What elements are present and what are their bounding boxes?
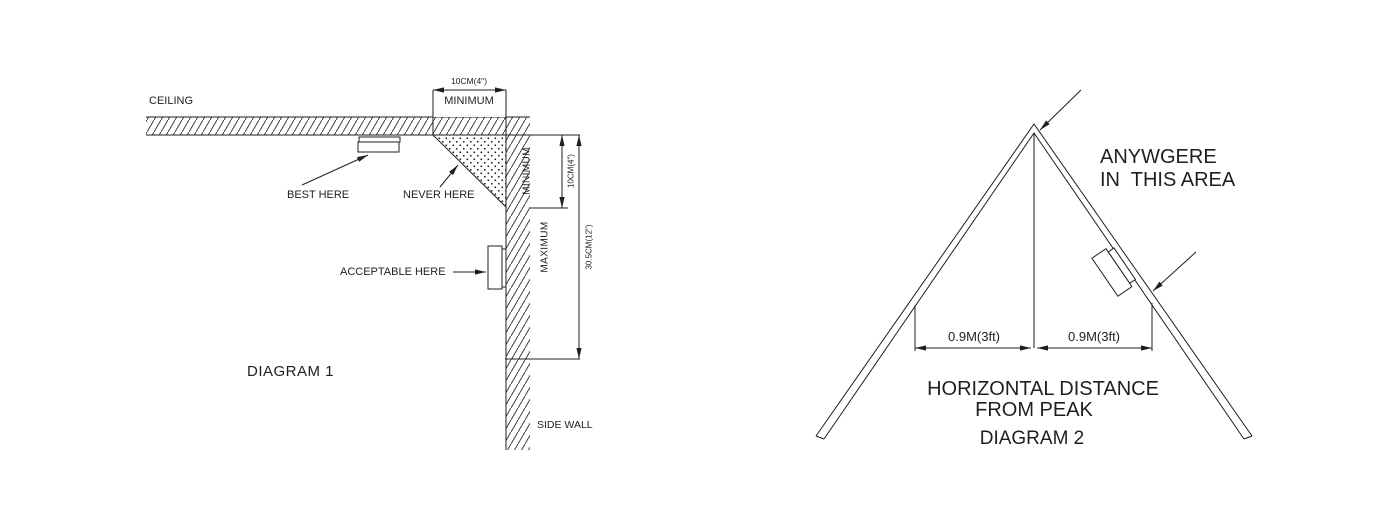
wall-max-dimension: MAXIMUM 30.5CM(12") xyxy=(504,221,629,272)
best-here-arrow xyxy=(302,155,368,185)
ceiling-label: CEILING xyxy=(149,95,193,107)
left-dimension-value: 0.9M(3ft) xyxy=(948,330,1000,344)
slope-detector xyxy=(1092,245,1138,297)
right-dimension-value: 0.9M(3ft) xyxy=(1068,330,1120,344)
peak-arrow xyxy=(1040,90,1081,130)
top-dimension-value: 10CM(4") xyxy=(451,77,487,86)
wall-max-label: MAXIMUM xyxy=(540,221,551,272)
caption-line1: HORIZONTAL DISTANCE xyxy=(927,378,1159,400)
best-here-label: BEST HERE xyxy=(287,189,349,201)
side-wall-label: SIDE WALL xyxy=(537,420,593,432)
never-here-label: NEVER HERE xyxy=(403,189,475,201)
ceiling-detector xyxy=(358,137,400,152)
wall-detector xyxy=(488,246,506,289)
anywhere-label-line1: ANYWGERE xyxy=(1100,146,1217,168)
ceiling-hatch xyxy=(146,117,530,135)
slope-arrow xyxy=(1153,252,1196,291)
anywhere-label-line2: IN THIS AREA xyxy=(1100,169,1235,191)
caption-line2: FROM PEAK xyxy=(975,399,1093,421)
acceptable-here-label: ACCEPTABLE HERE xyxy=(340,266,446,278)
wall-min-value: 10CM(4") xyxy=(568,147,577,195)
wall-min-dimension: MINIMUM 10CM(4") xyxy=(486,147,611,195)
diagram2-title: DIAGRAM 2 xyxy=(980,429,1085,450)
never-here-arrow xyxy=(440,165,458,187)
diagram1-title: DIAGRAM 1 xyxy=(247,364,334,381)
placement-diagrams: CEILING 10CM(4") MINIMUM BEST HERE NEVER… xyxy=(0,0,1400,520)
diagram-linework xyxy=(0,0,1400,520)
wall-max-value: 30.5CM(12") xyxy=(586,221,595,272)
top-dimension-label: MINIMUM xyxy=(444,95,494,107)
wall-min-label: MINIMUM xyxy=(522,147,533,195)
